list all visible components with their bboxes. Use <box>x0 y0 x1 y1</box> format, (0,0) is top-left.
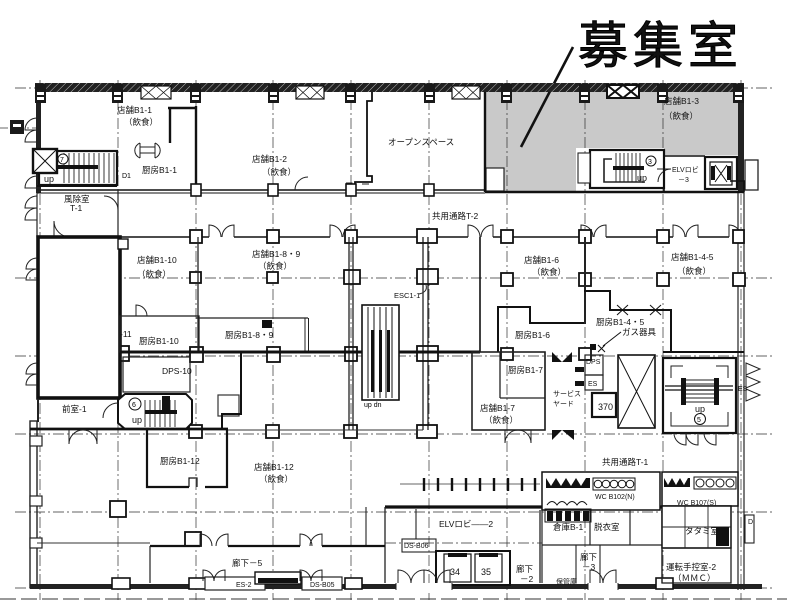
svg-text:35: 35 <box>481 567 491 577</box>
svg-text:募集室: 募集室 <box>578 18 743 74</box>
svg-text:7: 7 <box>60 157 64 164</box>
svg-text:サービス: サービス <box>553 389 581 398</box>
svg-text:店舗B1-8・9: 店舗B1-8・9 <box>252 249 300 259</box>
svg-text:ES: ES <box>738 386 748 393</box>
svg-text:運転手控室-2: 運転手控室-2 <box>666 562 716 572</box>
svg-text:（飲食）: （飲食） <box>137 269 171 279</box>
svg-text:T-1: T-1 <box>70 203 83 213</box>
svg-text:店舗B1-12: 店舗B1-12 <box>254 462 294 472</box>
svg-text:（飲食）: （飲食） <box>258 261 292 271</box>
svg-text:厨房B1-4・5: 厨房B1-4・5 <box>596 317 644 327</box>
svg-text:厨房B1-12: 厨房B1-12 <box>160 456 200 466</box>
svg-text:34: 34 <box>450 567 460 577</box>
svg-text:up: up <box>132 415 142 425</box>
svg-text:共用通路T-2: 共用通路T-2 <box>432 211 479 221</box>
svg-text:共用通路T-1: 共用通路T-1 <box>602 457 649 467</box>
svg-text:－2: －2 <box>520 574 534 584</box>
svg-text:前室-1: 前室-1 <box>62 404 87 414</box>
svg-text:倉庫B-1: 倉庫B-1 <box>553 522 584 532</box>
svg-text:3: 3 <box>648 159 652 166</box>
svg-text:保管庫: 保管庫 <box>556 577 577 586</box>
svg-text:（飲食）: （飲食） <box>677 266 711 276</box>
svg-text:店舗B1-6: 店舗B1-6 <box>524 255 559 265</box>
svg-text:370: 370 <box>598 402 613 412</box>
svg-text:ELVロビ: ELVロビ <box>672 165 699 174</box>
svg-text:up: up <box>44 174 54 184</box>
svg-text:6: 6 <box>132 402 136 409</box>
svg-text:（飲食）: （飲食） <box>484 415 518 425</box>
svg-text:WC B107(S): WC B107(S) <box>677 500 716 507</box>
svg-text:廊下: 廊下 <box>516 564 534 574</box>
svg-text:ESC1-1: ESC1-1 <box>394 291 420 300</box>
svg-text:厨房B1-1: 厨房B1-1 <box>142 165 177 175</box>
svg-text:5: 5 <box>697 417 701 424</box>
svg-text:D: D <box>748 519 753 526</box>
svg-text:up: up <box>637 173 647 183</box>
svg-text:店舗B1-4-5: 店舗B1-4-5 <box>671 252 714 262</box>
svg-text:DPS-10: DPS-10 <box>162 366 192 376</box>
svg-text:店舗B1-2: 店舗B1-2 <box>252 154 287 164</box>
svg-text:廊下: 廊下 <box>580 552 598 562</box>
svg-text:タタミ室: タタミ室 <box>685 526 720 536</box>
svg-text:店舗B1-7: 店舗B1-7 <box>480 403 515 413</box>
svg-text:－3: －3 <box>582 562 596 572</box>
svg-text:店舗B1-10: 店舗B1-10 <box>137 255 177 265</box>
svg-text:脱衣室: 脱衣室 <box>594 522 620 532</box>
svg-text:DPS: DPS <box>586 359 601 366</box>
svg-text:店舗B1-1: 店舗B1-1 <box>117 105 152 115</box>
svg-text:ES-2: ES-2 <box>236 582 252 589</box>
svg-text:（ＭＭＣ）: （ＭＭＣ） <box>673 573 716 583</box>
svg-text:up: up <box>695 404 705 414</box>
svg-text:（飲食）: （飲食） <box>664 111 698 121</box>
svg-text:-11: -11 <box>120 329 132 339</box>
svg-text:ヤード: ヤード <box>553 401 574 408</box>
svg-text:（飲食）: （飲食） <box>532 267 566 277</box>
svg-text:DS-B05: DS-B05 <box>310 582 335 589</box>
svg-text:up dn: up dn <box>364 402 382 409</box>
svg-text:厨房B1-6: 厨房B1-6 <box>515 330 550 340</box>
svg-text:DS-B06: DS-B06 <box>404 543 429 550</box>
svg-text:ガス器具: ガス器具 <box>622 327 657 337</box>
svg-text:厨房B1-7: 厨房B1-7 <box>508 365 543 375</box>
svg-text:D1: D1 <box>122 173 131 180</box>
svg-text:厨房B1-10: 厨房B1-10 <box>139 336 179 346</box>
svg-text:－3: －3 <box>678 177 689 184</box>
svg-text:厨房B1-8・9: 厨房B1-8・9 <box>225 330 273 340</box>
svg-text:ES: ES <box>588 381 598 388</box>
svg-text:（飲食）: （飲食） <box>259 474 293 484</box>
svg-text:WC B102(N): WC B102(N) <box>595 494 635 501</box>
svg-text:店舗B1-3: 店舗B1-3 <box>664 96 699 106</box>
svg-text:（飲食）: （飲食） <box>262 167 296 177</box>
svg-text:（飲食）: （飲食） <box>124 117 158 127</box>
svg-text:ELVロビ――2: ELVロビ――2 <box>439 519 493 529</box>
svg-text:廊下－5: 廊下－5 <box>232 558 263 568</box>
svg-text:オープンスペース: オープンスペース <box>388 137 454 147</box>
